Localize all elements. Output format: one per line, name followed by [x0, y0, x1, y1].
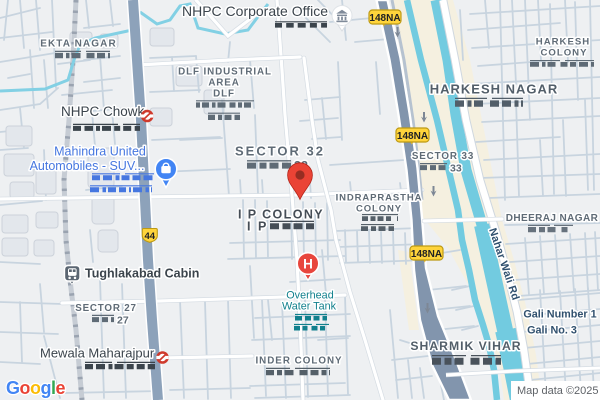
svg-text:Google: Google — [6, 378, 66, 398]
svg-text:Gali Number 1: Gali Number 1 — [523, 309, 596, 321]
svg-text:27: 27 — [117, 315, 129, 327]
svg-text:INDER COLONY: INDER COLONY — [255, 356, 342, 367]
svg-text:DHEERAJ NAGAR: DHEERAJ NAGAR — [506, 213, 599, 224]
svg-text:COLONY: COLONY — [356, 204, 402, 215]
svg-text:H: H — [303, 256, 313, 271]
svg-text:HARKESH: HARKESH — [536, 37, 590, 48]
svg-text:I P: I P — [247, 220, 268, 234]
svg-text:33: 33 — [450, 163, 462, 175]
svg-text:DLF: DLF — [213, 89, 235, 100]
svg-text:NHPC Chowk: NHPC Chowk — [61, 104, 145, 119]
svg-text:44: 44 — [145, 231, 156, 242]
svg-text:Mahindra United: Mahindra United — [54, 145, 146, 159]
svg-text:Mewala Maharajpur: Mewala Maharajpur — [40, 346, 155, 361]
svg-text:AREA: AREA — [208, 78, 239, 89]
svg-text:Automobiles - SUV...: Automobiles - SUV... — [30, 159, 145, 173]
svg-text:NHPC Corporate Office: NHPC Corporate Office — [182, 3, 328, 19]
svg-text:148NA: 148NA — [369, 13, 400, 24]
svg-text:EKTA NAGAR: EKTA NAGAR — [40, 39, 117, 50]
svg-text:SECTOR 32: SECTOR 32 — [235, 144, 325, 159]
svg-text:SECTOR 27: SECTOR 27 — [75, 303, 136, 314]
svg-text:Tughlakabad Cabin: Tughlakabad Cabin — [85, 267, 199, 281]
svg-text:Water Tank: Water Tank — [282, 301, 337, 313]
svg-text:HARKESH NAGAR: HARKESH NAGAR — [430, 82, 559, 97]
svg-text:COLONY: COLONY — [540, 48, 587, 59]
svg-text:INDRAPRASTHA: INDRAPRASTHA — [336, 193, 423, 204]
svg-text:Gali No. 3: Gali No. 3 — [527, 325, 577, 337]
svg-text:DLF INDUSTRIAL: DLF INDUSTRIAL — [178, 67, 272, 78]
svg-text:148NA: 148NA — [411, 249, 442, 260]
svg-text:Map data ©2025: Map data ©2025 — [517, 385, 599, 397]
svg-text:SECTOR 33: SECTOR 33 — [412, 151, 474, 162]
svg-text:148NA: 148NA — [397, 131, 428, 142]
svg-text:SHARMIK VIHAR: SHARMIK VIHAR — [410, 339, 521, 353]
